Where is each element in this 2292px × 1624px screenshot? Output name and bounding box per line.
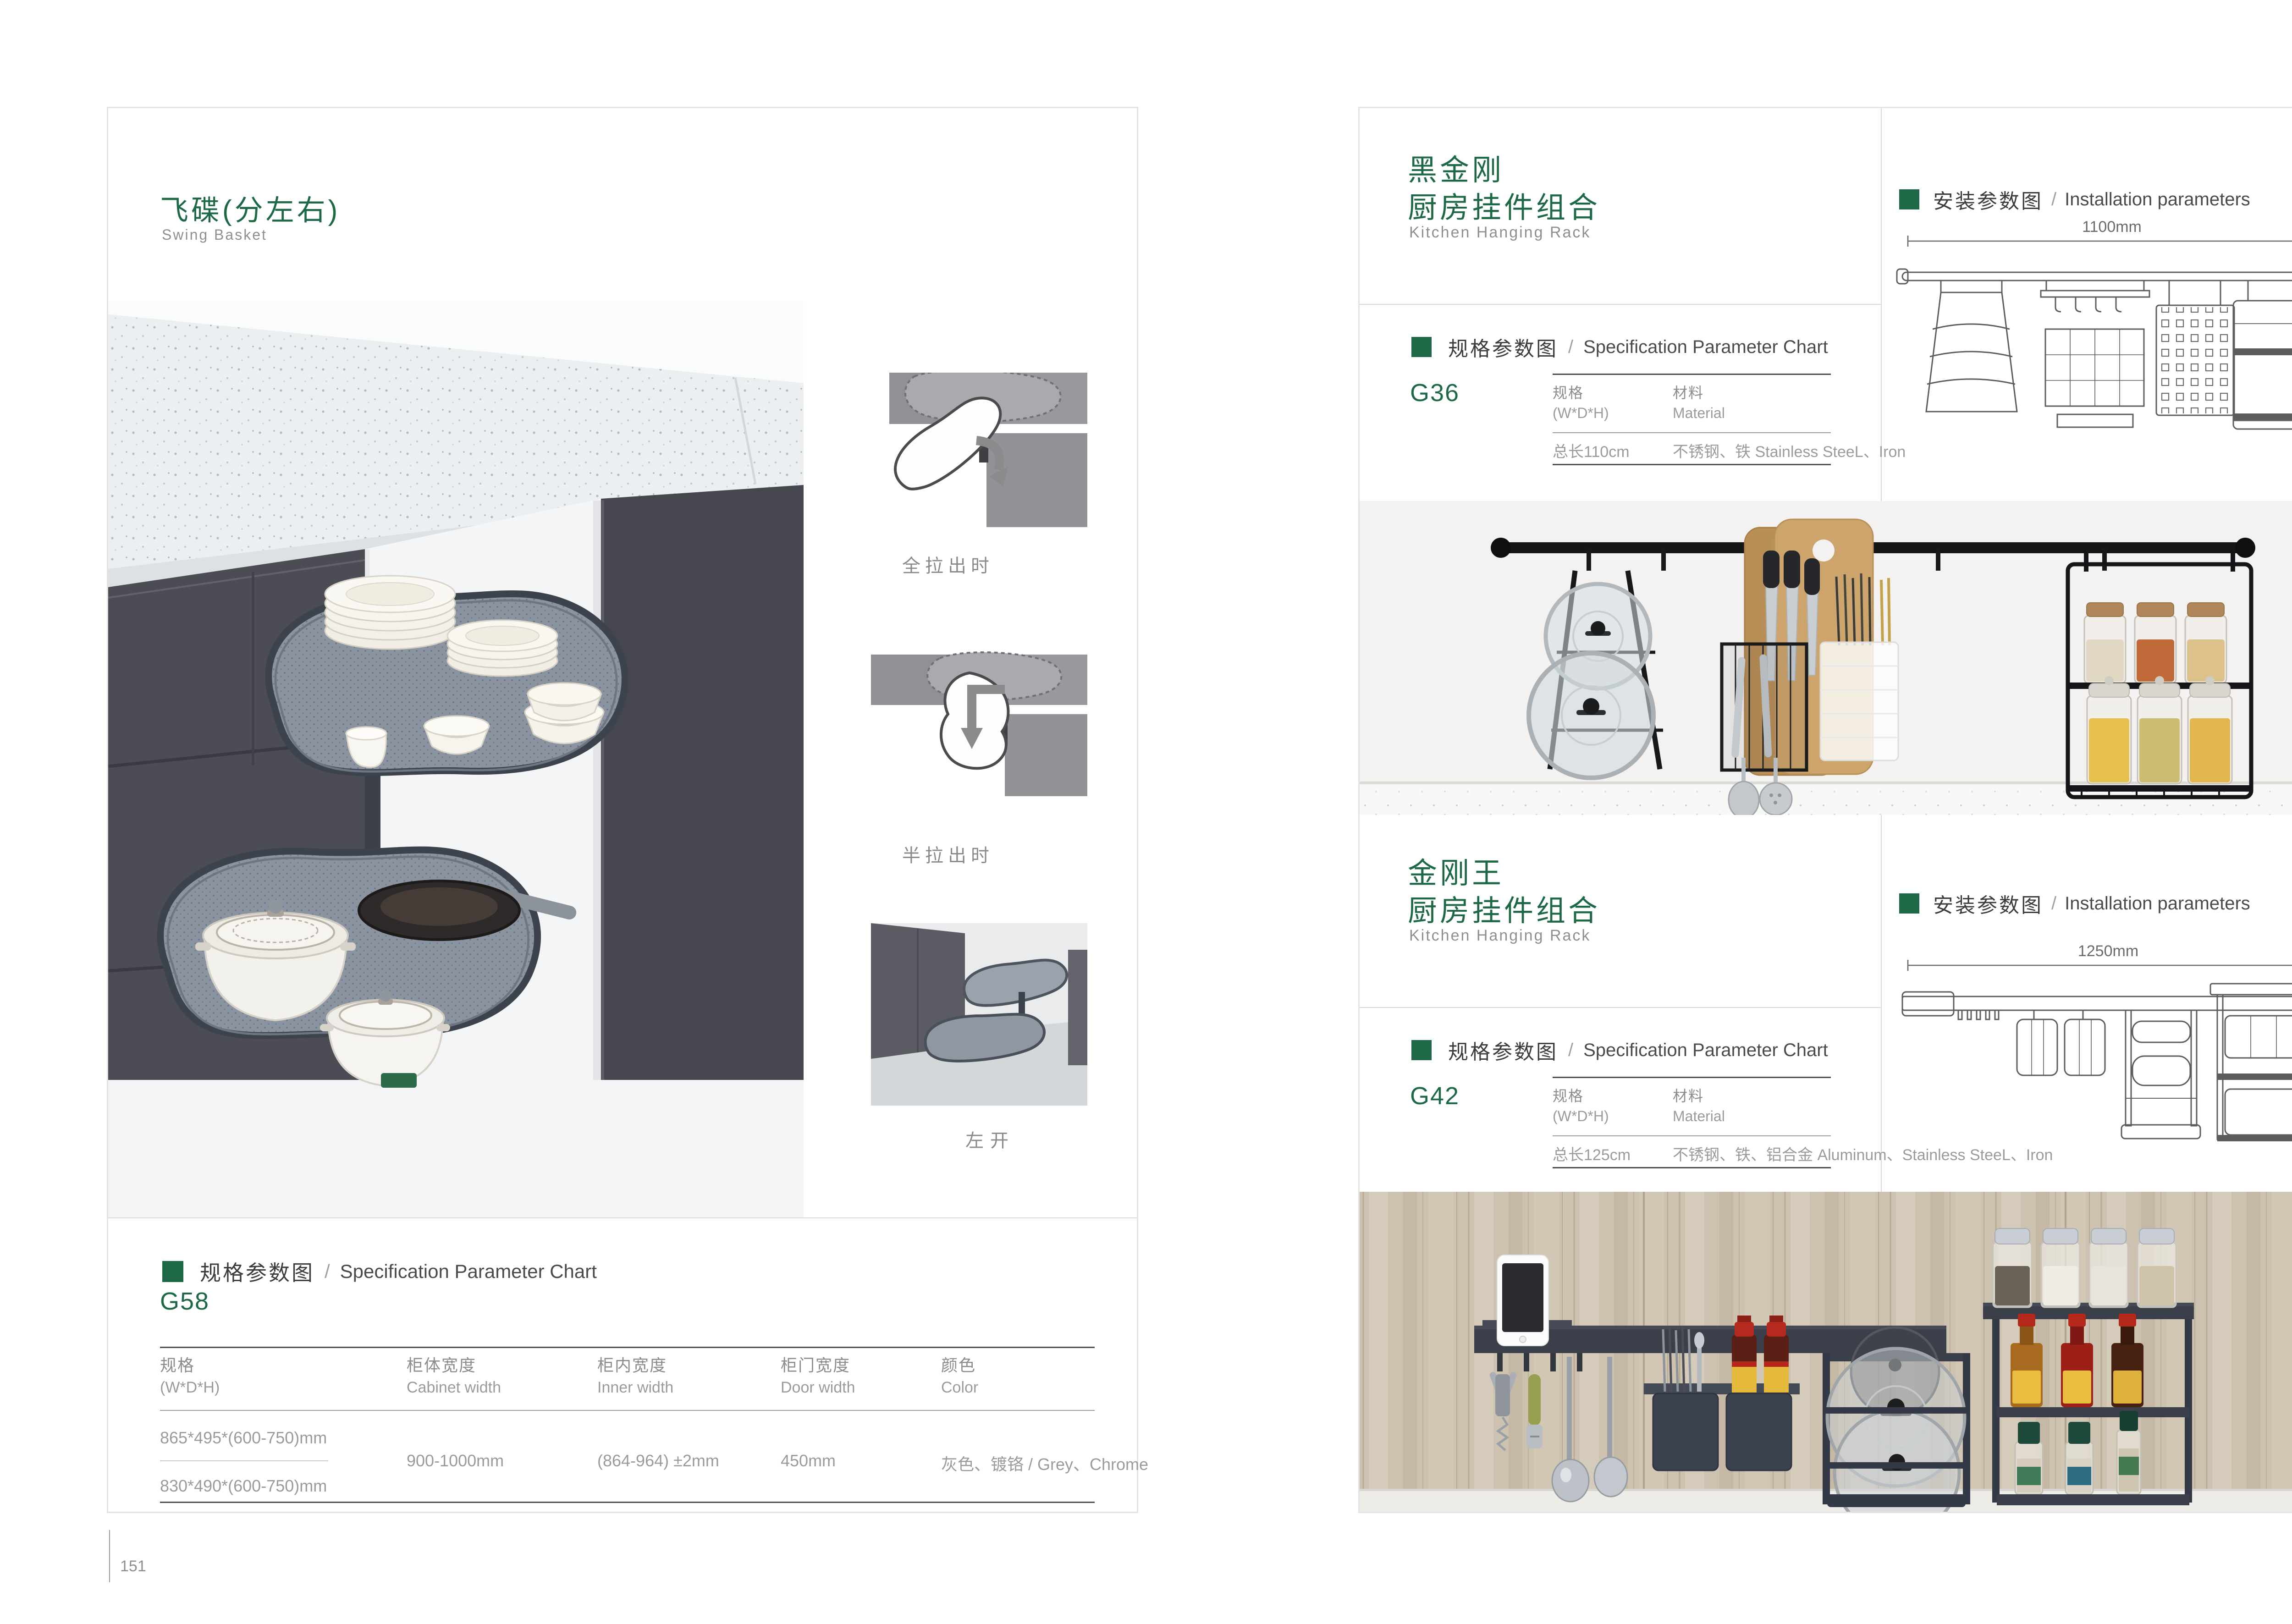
section2-spec-heading: 规格参数图 / Specification Parameter Chart — [1411, 1035, 1828, 1065]
dim-width-label: 1100mm — [2082, 218, 2142, 236]
left-spec-heading: 规格参数图 / Specification Parameter Chart — [162, 1256, 597, 1287]
value-material: 不锈钢、铁 Stainless SteeL、Iron — [1673, 439, 1906, 462]
section2-title-en: Kitchen Hanging Rack — [1409, 927, 1591, 945]
dim-width-label: 1250mm — [2078, 942, 2138, 960]
catalog-spread: { "left_page": { "title_cn": "飞碟(分左右)", … — [0, 0, 2292, 1624]
green-cap-bottles — [2015, 1411, 2141, 1494]
value-cabinet-width: 900-1000mm — [407, 1451, 504, 1470]
left-page-card: 飞碟(分左右) Swing Basket — [107, 107, 1138, 1513]
value-size: 总长110cm — [1553, 439, 1630, 462]
installation-diagram-g36: 1100mm — [1894, 214, 2292, 434]
installation-diagram-g42: 1250mm — [1894, 938, 2292, 1158]
col-material: 材料 Material — [1673, 1085, 1725, 1126]
col-cabinet-width: 柜体宽度Cabinet width — [407, 1354, 501, 1398]
divider — [1360, 1007, 1881, 1008]
value-size: 总长125cm — [1553, 1142, 1631, 1165]
section1-install-heading: 安装参数图 / Installation parameters — [1899, 185, 2250, 214]
swing-basket-photo — [108, 301, 804, 1217]
col-size: 规格 (W*D*H) — [1553, 1085, 1609, 1126]
col-material: 材料 Material — [1673, 382, 1725, 423]
grey-rack-photo — [1360, 1192, 2292, 1512]
value-door-width: 450mm — [781, 1451, 836, 1470]
section1-title-line2: 厨房挂件组合 — [1408, 184, 1600, 226]
section1-title-line1: 黑金刚 — [1408, 147, 1504, 189]
thumb-half-pull — [871, 645, 1087, 796]
swing-basket-illustration — [108, 301, 804, 1217]
brand-tag — [381, 1073, 417, 1088]
page-number-left: 151 — [120, 1558, 146, 1575]
col-door-width: 柜门宽度Door width — [781, 1354, 855, 1398]
photo-bottom-divider — [108, 1217, 1137, 1218]
lid-holder — [1823, 1327, 1970, 1512]
green-square-icon — [162, 1261, 183, 1282]
left-page-subtitle: Swing Basket — [162, 226, 267, 243]
col-size: 规格 (W*D*H) — [1553, 382, 1609, 423]
floor — [108, 1080, 804, 1217]
col-color: 颜色Color — [941, 1354, 978, 1398]
left-page-title: 飞碟(分左右) — [160, 187, 340, 228]
divider — [1360, 304, 1881, 305]
upper-swing-tray — [269, 576, 625, 773]
utensil-basket — [1722, 644, 1807, 770]
section1-spec-heading: 规格参数图 / Specification Parameter Chart — [1411, 332, 1828, 362]
thumb-full-pull — [871, 373, 1087, 527]
section2-model-code: G42 — [1410, 1082, 1460, 1110]
value-size1: 865*495*(600-750)mm — [160, 1428, 327, 1448]
section2-install-heading: 安装参数图 / Installation parameters — [1899, 889, 2250, 918]
thumb-caption: 半拉出时 — [902, 841, 994, 867]
green-square-icon — [1411, 1040, 1432, 1060]
bowl-stack — [525, 683, 604, 743]
green-square-icon — [1899, 893, 1919, 914]
value-inner-width: (864-964) ±2mm — [597, 1451, 719, 1470]
value-material: 不锈钢、铁、铝合金 Aluminum、Stainless SteeL、Iron — [1673, 1142, 2053, 1165]
left-model-code: G58 — [160, 1287, 209, 1316]
page-number-rule-left — [109, 1530, 110, 1582]
thumb-caption: 全拉出时 — [902, 551, 994, 578]
col-size: 规格(W*D*H) — [160, 1354, 220, 1398]
peeler — [1526, 1374, 1543, 1448]
plate-stack-2 — [447, 620, 557, 676]
plate-stack-1 — [325, 576, 455, 649]
section1-title-en: Kitchen Hanging Rack — [1409, 224, 1591, 242]
bottom-jars — [2087, 676, 2232, 784]
green-square-icon — [1899, 189, 1919, 209]
value-color: 灰色、镀铬 / Grey、Chrome — [941, 1451, 1148, 1475]
right-page-card: 黑金刚 厨房挂件组合 Kitchen Hanging Rack 安装参数图 / … — [1358, 107, 2292, 1513]
thumb-caption: 左开 — [965, 1126, 1015, 1152]
glass-lid — [1529, 653, 1653, 778]
top-jars — [2084, 603, 2226, 683]
value-size2: 830*490*(600-750)mm — [160, 1476, 327, 1496]
col-inner-width: 柜内宽度Inner width — [597, 1354, 673, 1398]
section1-model-code: G36 — [1410, 379, 1460, 407]
black-rack-photo — [1360, 501, 2292, 815]
section2-title-line1: 金刚王 — [1408, 850, 1504, 892]
sauce-bottle-tier — [2011, 1314, 2143, 1407]
section2-title-line2: 厨房挂件组合 — [1408, 887, 1600, 930]
divider — [1881, 815, 1882, 1192]
thumb-left-open — [871, 923, 1087, 1106]
green-square-icon — [1411, 337, 1432, 357]
